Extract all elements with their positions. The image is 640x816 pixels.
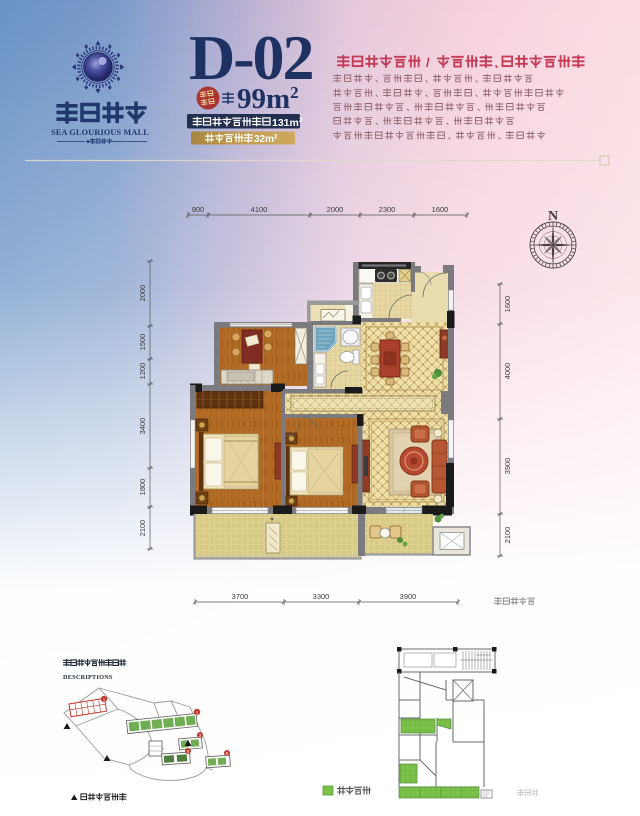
svg-text:2000: 2000 — [327, 205, 344, 214]
svg-text:SEA GLOURIOUS MALL: SEA GLOURIOUS MALL — [51, 128, 149, 137]
svg-text:2100: 2100 — [503, 527, 512, 544]
svg-text:N: N — [548, 209, 558, 224]
svg-text:1800: 1800 — [138, 479, 147, 496]
svg-text:2100: 2100 — [138, 520, 147, 537]
svg-text:900: 900 — [192, 205, 205, 214]
svg-text:99m2: 99m2 — [237, 83, 299, 115]
svg-text:4100: 4100 — [251, 205, 268, 214]
svg-text:3400: 3400 — [138, 418, 147, 435]
svg-text:2000: 2000 — [138, 285, 147, 302]
svg-text:DESCRIPTIONS: DESCRIPTIONS — [63, 674, 113, 681]
svg-text:3700: 3700 — [232, 592, 249, 601]
svg-text:3300: 3300 — [313, 592, 330, 601]
svg-text:1600: 1600 — [503, 296, 512, 313]
svg-text:3900: 3900 — [503, 458, 512, 475]
svg-text:/: / — [426, 55, 430, 70]
svg-text:4000: 4000 — [503, 363, 512, 380]
svg-text:2300: 2300 — [379, 205, 396, 214]
svg-text:131m2: 131m2 — [272, 117, 303, 129]
svg-text:1500: 1500 — [138, 334, 147, 351]
svg-text:3900: 3900 — [400, 592, 417, 601]
svg-text:1200: 1200 — [138, 363, 147, 380]
svg-text:1600: 1600 — [432, 205, 449, 214]
